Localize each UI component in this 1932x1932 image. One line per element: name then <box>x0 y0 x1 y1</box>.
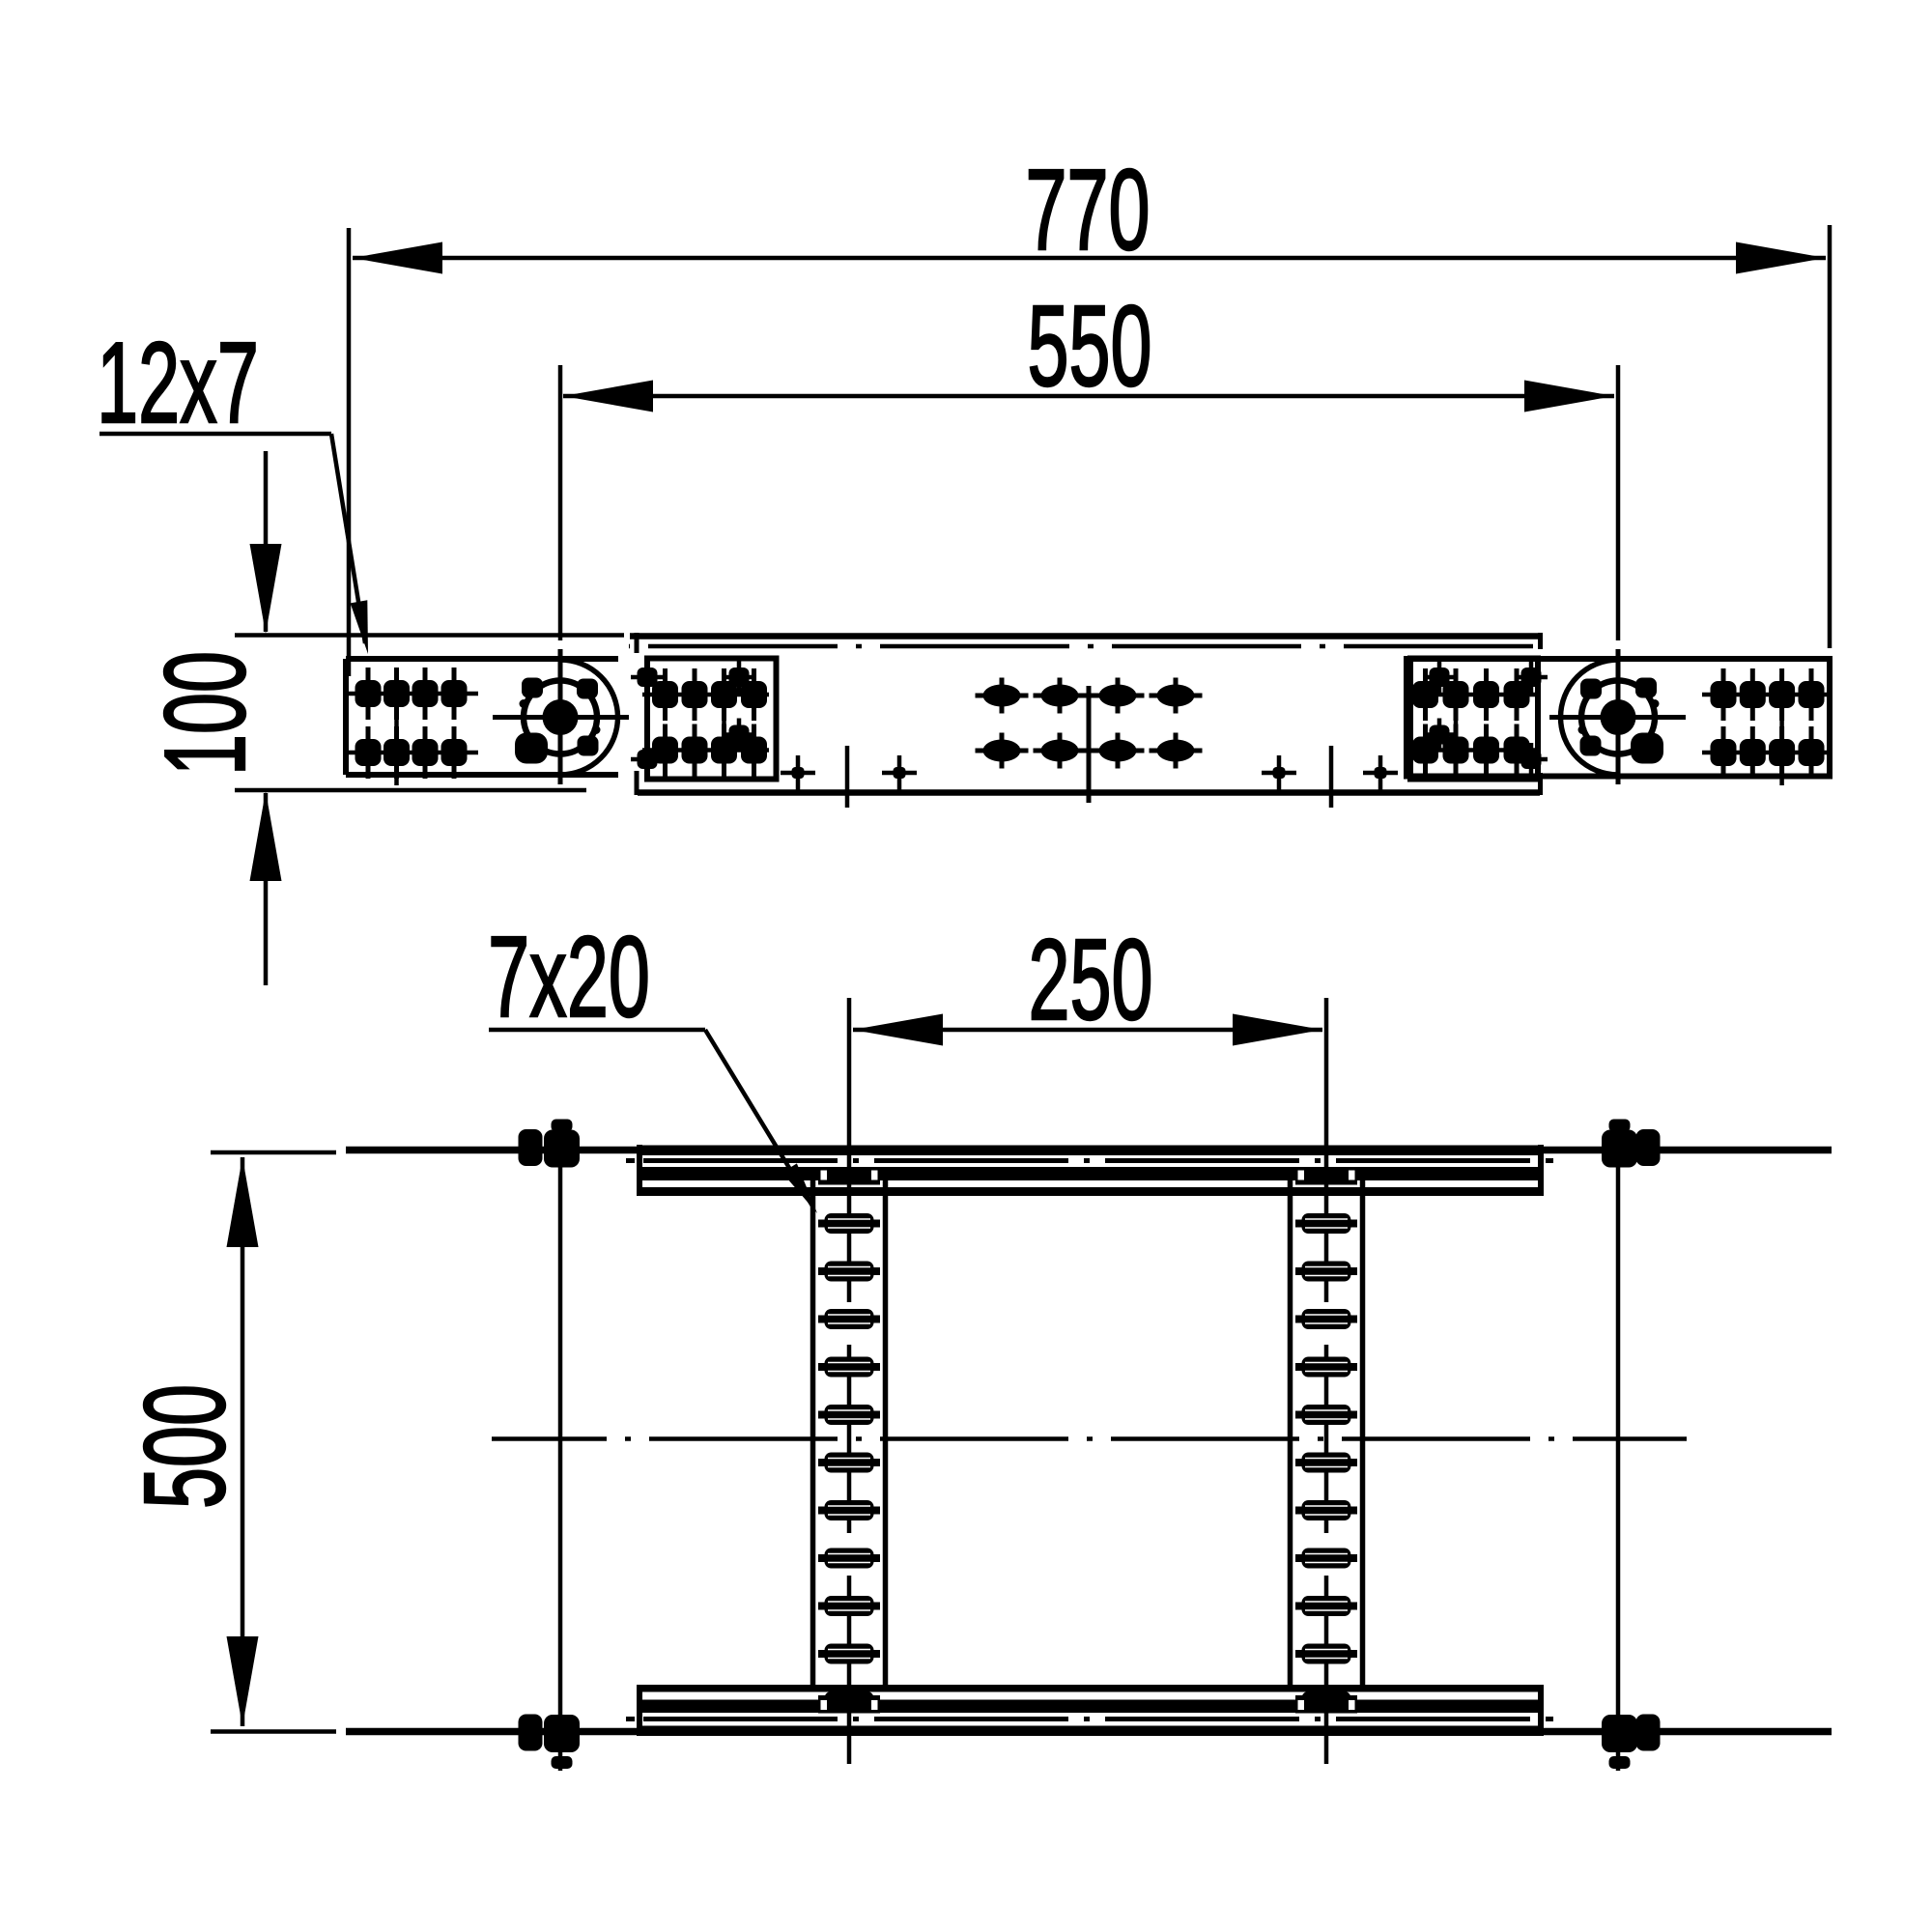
svg-text:250: 250 <box>1028 916 1152 1044</box>
svg-text:100: 100 <box>141 651 270 776</box>
svg-text:500: 500 <box>121 1384 249 1509</box>
svg-text:770: 770 <box>1025 146 1150 274</box>
svg-text:12x7: 12x7 <box>97 319 259 447</box>
svg-text:7x20: 7x20 <box>488 913 650 1041</box>
svg-text:550: 550 <box>1027 282 1151 411</box>
